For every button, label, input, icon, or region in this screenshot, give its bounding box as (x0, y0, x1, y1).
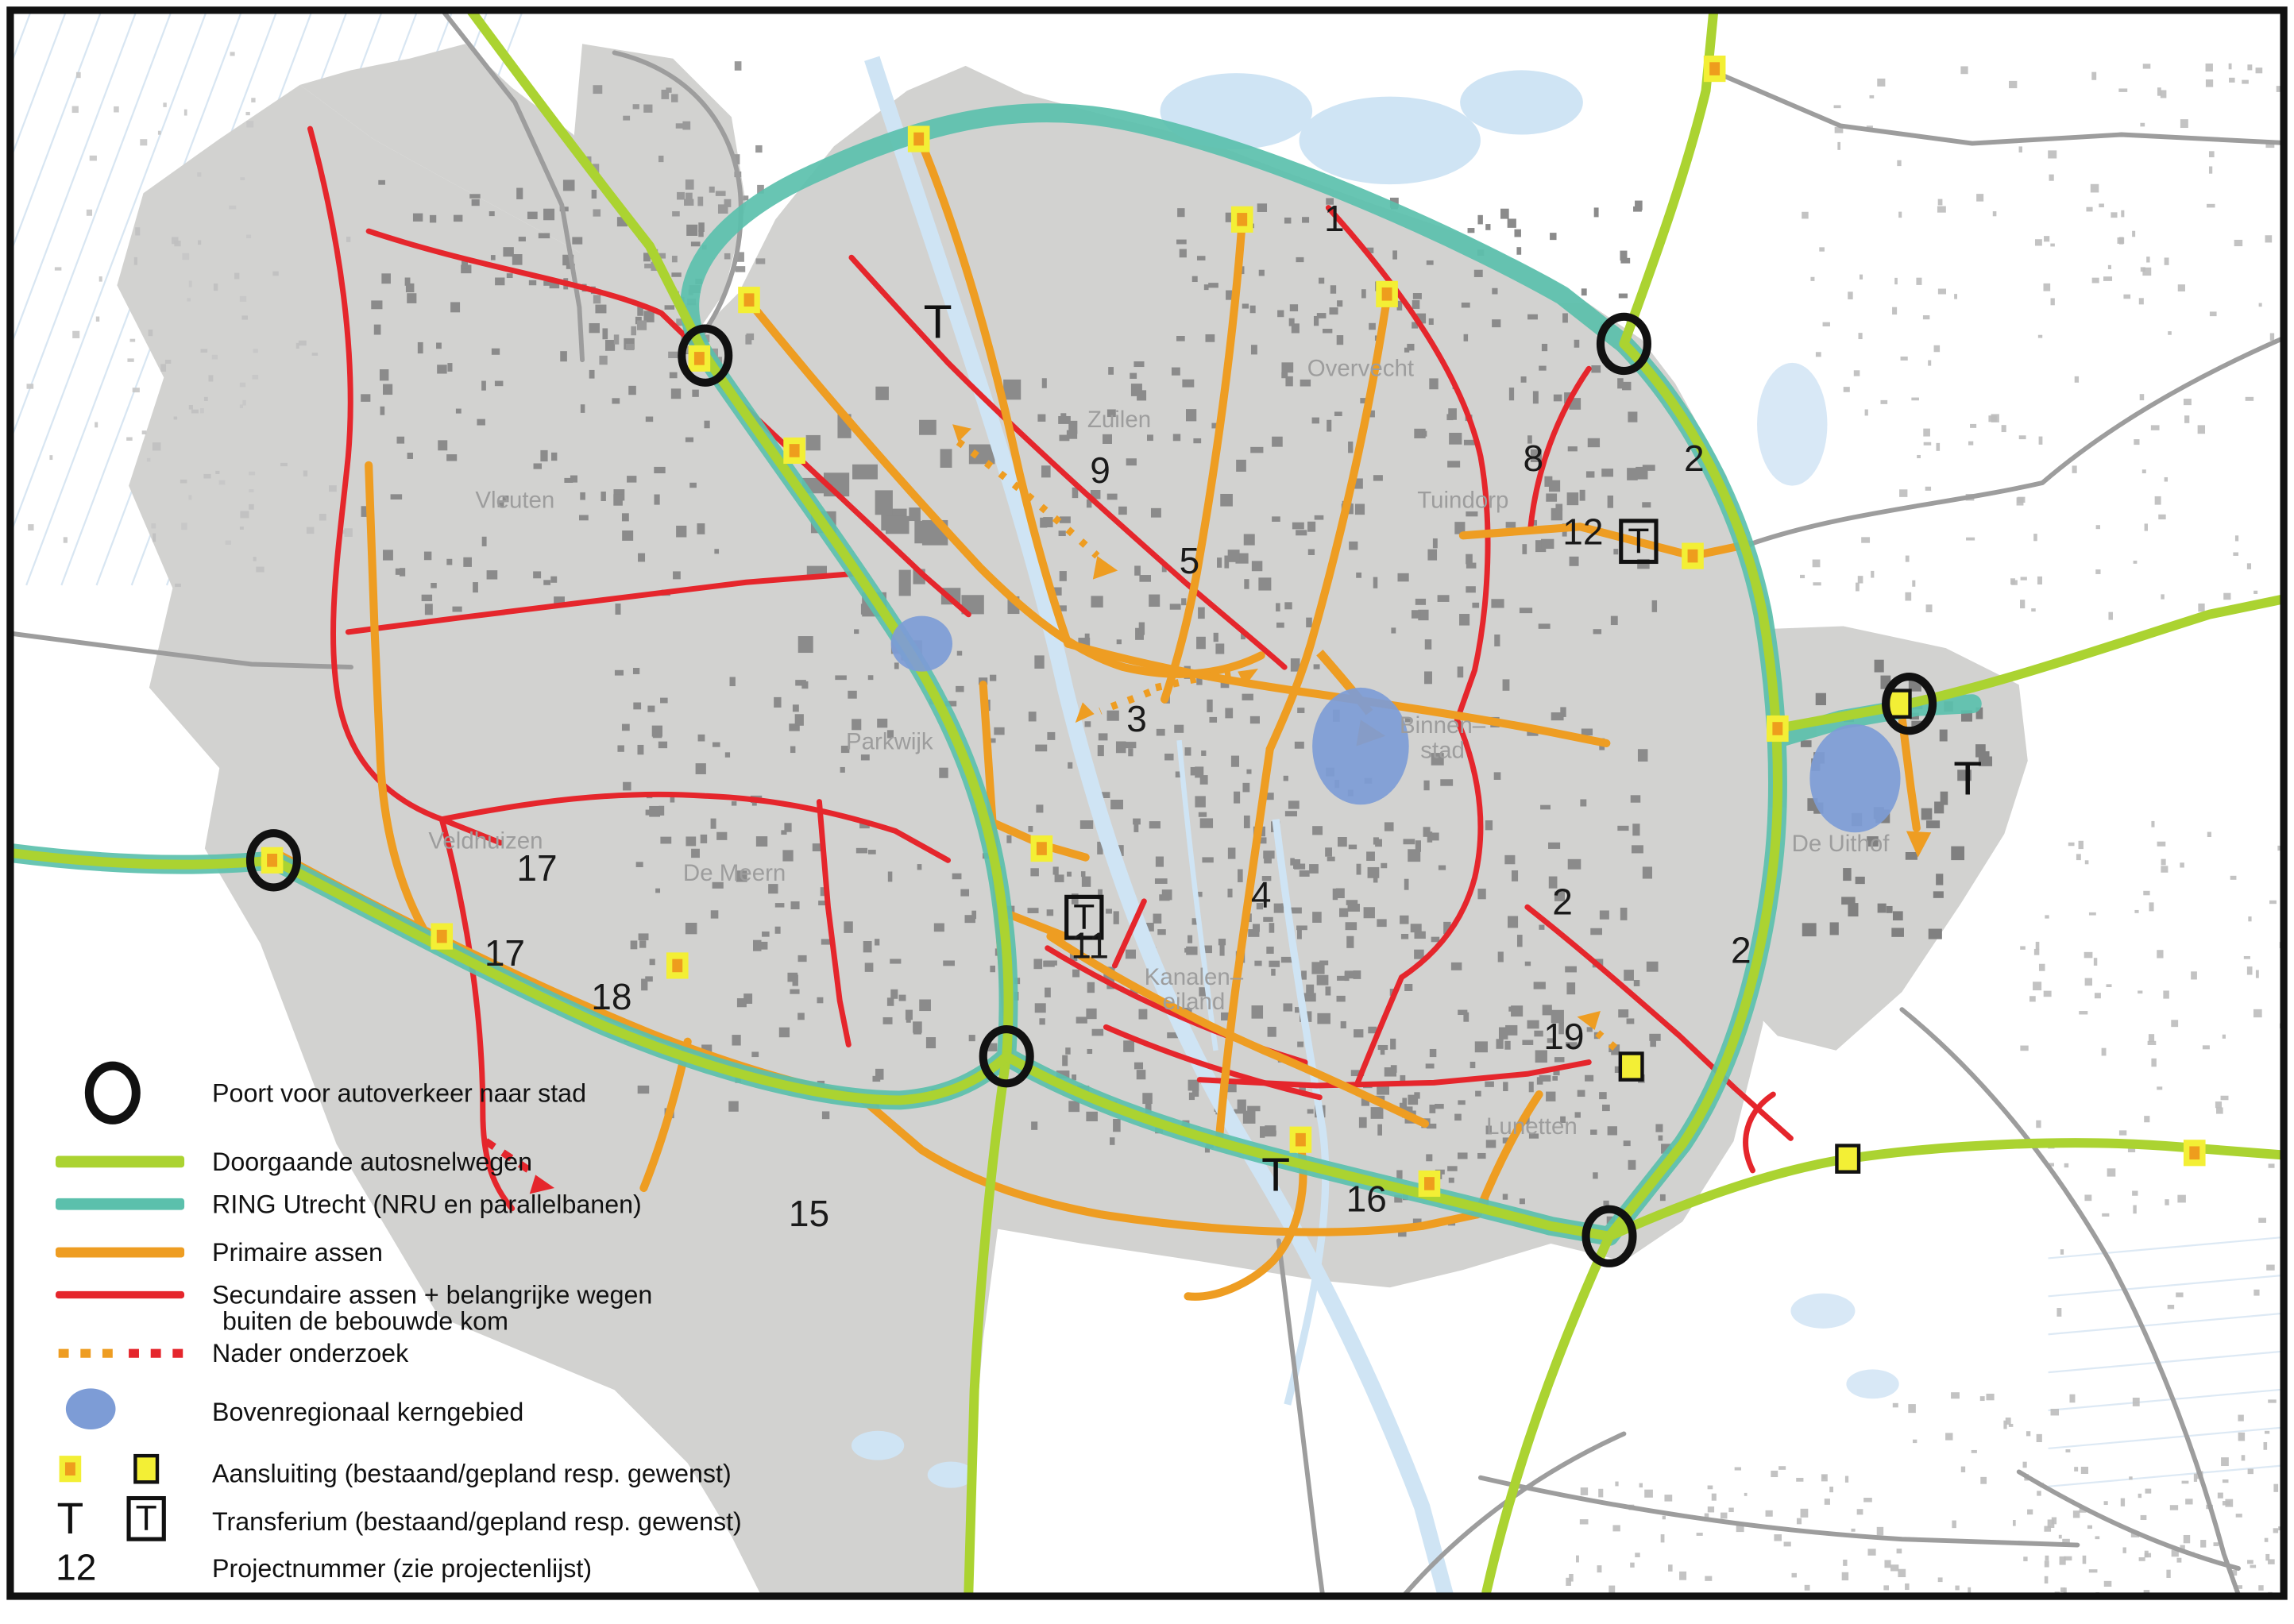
building-block (1504, 855, 1515, 864)
building-block (1435, 1104, 1444, 1109)
building-block (1231, 756, 1239, 767)
building-block (691, 241, 701, 246)
building-block (2060, 1249, 2064, 1255)
junction-inner (437, 930, 447, 943)
building-block (1628, 1160, 1636, 1170)
building-block (1568, 446, 1578, 451)
building-block (2214, 1542, 2219, 1546)
building-block (2107, 984, 2112, 987)
building-block (2184, 399, 2192, 405)
building-block (1296, 257, 1303, 262)
building-block (1600, 910, 1609, 919)
building-block (1312, 912, 1322, 923)
building-block (90, 156, 97, 161)
building-block (1157, 729, 1165, 736)
building-block (791, 901, 800, 909)
building-block (543, 580, 550, 584)
building-block (2184, 415, 2189, 423)
building-block (1720, 1513, 1727, 1519)
building-block (872, 1076, 880, 1082)
building-block (1006, 835, 1011, 843)
building-block (2176, 1558, 2181, 1563)
building-block (2161, 866, 2168, 872)
building-block (2209, 151, 2215, 157)
building-block (1359, 1117, 1367, 1128)
building-block (1951, 847, 1964, 861)
junction-existing-icon (1231, 206, 1253, 233)
building-block (2043, 284, 2050, 291)
building-block (969, 1035, 975, 1041)
building-block (2247, 1560, 2253, 1564)
building-block (2191, 1600, 2196, 1608)
building-block (1149, 821, 1161, 828)
building-block (1396, 1171, 1402, 1179)
building-block (844, 921, 852, 933)
building-block (909, 507, 921, 521)
building-block (714, 549, 719, 554)
building-block (1543, 1005, 1552, 1015)
building-block (716, 832, 727, 840)
building-block (1317, 313, 1327, 318)
building-block (899, 995, 906, 1001)
building-block (1412, 300, 1420, 309)
building-block (1509, 388, 1514, 400)
building-block (1327, 420, 1331, 432)
building-block (1041, 465, 1051, 477)
building-block (1877, 79, 1885, 87)
building-block (2029, 996, 2036, 1001)
building-block (1003, 380, 1021, 399)
building-block (1609, 1586, 1615, 1594)
building-block (452, 607, 462, 612)
building-block (636, 862, 643, 867)
building-block (1250, 716, 1260, 723)
building-block (639, 933, 649, 940)
building-block (1072, 970, 1079, 978)
building-block (1297, 1042, 1303, 1047)
building-block (919, 1000, 931, 1012)
building-block (1272, 516, 1280, 522)
building-block (2140, 394, 2145, 400)
building-block (1337, 996, 1346, 1002)
building-block (926, 1037, 936, 1048)
building-block (1268, 1027, 1276, 1037)
building-block (940, 449, 952, 468)
building-block (1062, 1055, 1068, 1067)
building-block (1492, 288, 1497, 295)
building-block (1928, 361, 1931, 366)
building-block (191, 410, 199, 414)
building-block (1243, 1111, 1256, 1124)
building-block (1423, 827, 1431, 837)
junction-existing-icon (1031, 835, 1053, 862)
building-block (672, 256, 678, 262)
building-block (2268, 1399, 2276, 1402)
building-block (2118, 237, 2125, 244)
building-block (658, 156, 663, 162)
building-block (676, 526, 686, 538)
building-block (153, 534, 156, 542)
building-block (1447, 1166, 1458, 1171)
building-block (200, 408, 204, 413)
building-block (2023, 1556, 2027, 1561)
building-block (249, 472, 255, 476)
building-block (682, 122, 690, 130)
building-block (1312, 826, 1323, 835)
building-block (2052, 1518, 2056, 1525)
building-block (1296, 925, 1307, 930)
building-block (861, 754, 870, 760)
building-block (1139, 575, 1151, 582)
building-block (2166, 1570, 2170, 1578)
building-block (1236, 460, 1246, 472)
building-block (1085, 721, 1091, 727)
building-block (793, 704, 799, 712)
building-block (589, 370, 595, 379)
building-block (890, 959, 901, 963)
building-block (1537, 1077, 1543, 1084)
building-block (2145, 523, 2148, 530)
building-block (943, 960, 955, 966)
building-block (1869, 95, 1874, 98)
building-block (856, 848, 867, 854)
building-block (1516, 247, 1521, 255)
building-block (2121, 210, 2124, 218)
building-block (407, 453, 413, 459)
transferium-existing-icon: T (1261, 1150, 1290, 1202)
building-block (519, 237, 526, 241)
building-block (147, 458, 150, 462)
building-block (2258, 1218, 2266, 1223)
building-block (1624, 970, 1634, 981)
building-block (1439, 866, 1446, 870)
building-block (2121, 1499, 2125, 1506)
building-block (581, 404, 585, 413)
building-block (668, 352, 678, 358)
building-block (1585, 1075, 1593, 1082)
building-block (1087, 982, 1095, 993)
building-block (1317, 975, 1329, 986)
building-block (1044, 960, 1057, 965)
building-block (1891, 928, 1904, 936)
building-block (1039, 1018, 1045, 1024)
building-block (875, 490, 893, 515)
building-block (1893, 911, 1903, 920)
building-block (1028, 908, 1039, 913)
building-block (1774, 1534, 1782, 1541)
building-block (1043, 517, 1052, 527)
building-block (230, 52, 235, 56)
building-block (2021, 577, 2027, 580)
building-block (251, 98, 255, 102)
building-block (627, 476, 636, 482)
building-block (1311, 962, 1324, 974)
building-block (430, 215, 436, 223)
lake-maarsseveen-2 (1300, 97, 1481, 185)
building-block (1431, 937, 1439, 943)
junction-inner (1424, 1177, 1435, 1190)
building-block (1118, 507, 1127, 515)
building-block (564, 478, 573, 483)
building-block (1735, 1468, 1741, 1471)
building-block (1284, 602, 1292, 609)
building-block (1542, 344, 1547, 351)
building-block (1177, 208, 1184, 217)
building-block (1655, 1124, 1663, 1132)
building-block (835, 675, 847, 680)
building-block (1185, 747, 1191, 756)
building-block (149, 330, 153, 336)
building-block (1813, 582, 1821, 585)
building-block (2157, 950, 2163, 958)
building-block (446, 454, 457, 461)
building-block (1422, 431, 1427, 437)
building-block (1841, 897, 1855, 905)
building-block (378, 180, 385, 185)
junction-inner (1709, 62, 1720, 75)
building-block (602, 328, 608, 339)
building-block (1917, 455, 1921, 458)
building-block (2134, 439, 2139, 445)
building-block (241, 315, 248, 319)
building-block (1464, 334, 1469, 341)
building-block (1276, 603, 1280, 611)
building-block (957, 651, 962, 656)
building-block (1952, 1521, 1956, 1529)
building-block (1134, 565, 1141, 575)
building-block (2019, 146, 2022, 152)
building-block (654, 467, 665, 473)
building-block (1035, 1003, 1046, 1013)
building-block (1581, 1487, 1588, 1495)
junction-existing-icon (908, 125, 930, 152)
building-block (863, 941, 872, 952)
building-block (2020, 600, 2025, 608)
building-block (1550, 233, 1556, 240)
building-block (1082, 877, 1091, 887)
building-block (743, 195, 748, 200)
building-block (1618, 1009, 1628, 1017)
building-block (2171, 1020, 2178, 1027)
building-block (1157, 929, 1165, 935)
building-block (1496, 1039, 1503, 1049)
building-block (1810, 277, 1814, 281)
building-block (87, 210, 92, 216)
building-block (1766, 1510, 1773, 1517)
building-block (1271, 969, 1276, 976)
building-block (201, 349, 208, 353)
building-block (1060, 516, 1071, 523)
building-block (1649, 1034, 1660, 1041)
building-block (174, 417, 177, 420)
building-block (1447, 461, 1460, 467)
building-block (2168, 331, 2172, 335)
building-block (1220, 494, 1233, 507)
building-block (685, 836, 696, 846)
building-block (1330, 285, 1336, 294)
building-block (658, 742, 667, 748)
building-block (1196, 637, 1206, 649)
building-block (1361, 289, 1366, 298)
building-block (1477, 1153, 1485, 1159)
building-block (1281, 372, 1288, 378)
building-block (1354, 1029, 1363, 1037)
building-block (72, 106, 79, 113)
building-block (1581, 288, 1587, 295)
building-block (753, 940, 761, 951)
building-block (1883, 1585, 1889, 1590)
building-block (1214, 633, 1218, 642)
building-block (1908, 1404, 1916, 1413)
building-block (1580, 1519, 1589, 1524)
building-block (153, 442, 160, 450)
building-block (1354, 970, 1361, 979)
pond-sw-1 (852, 1431, 904, 1460)
building-block (2206, 64, 2213, 71)
building-block (696, 763, 706, 774)
building-block (1284, 218, 1291, 224)
building-block (2200, 1540, 2206, 1548)
building-block (1068, 1101, 1079, 1112)
building-block (595, 305, 606, 314)
building-block (774, 697, 781, 708)
place-label: Parkwijk (846, 728, 933, 754)
building-block (135, 227, 140, 235)
building-block (1226, 291, 1232, 300)
building-block (671, 94, 678, 102)
building-block (436, 342, 442, 349)
building-block (189, 405, 193, 410)
building-block (1845, 1476, 1848, 1483)
building-block (533, 571, 541, 578)
building-block (188, 495, 191, 500)
building-block (1624, 1140, 1631, 1146)
junction-inner (65, 1462, 75, 1475)
building-block (2247, 966, 2253, 975)
building-block (1137, 1070, 1146, 1079)
building-block (2221, 1096, 2229, 1101)
building-block (1149, 595, 1160, 607)
building-block (601, 492, 605, 501)
place-label: Overvecht (1307, 355, 1414, 381)
building-block (1349, 845, 1357, 850)
building-block (1813, 560, 1821, 568)
building-block (1960, 66, 1968, 74)
building-block (1029, 712, 1037, 721)
junction-inner (1688, 550, 1698, 563)
building-block (1993, 211, 1997, 216)
building-block (551, 453, 557, 461)
building-block (1784, 1541, 1791, 1546)
building-block (1934, 345, 1941, 352)
building-block (1566, 982, 1575, 994)
building-block (2132, 231, 2135, 237)
building-block (1527, 314, 1538, 320)
building-block (1375, 839, 1382, 847)
building-block (685, 179, 694, 190)
pond-se-2 (1846, 1369, 1898, 1398)
building-block (631, 940, 638, 949)
building-block (1242, 303, 1249, 308)
project-number: 16 (1346, 1178, 1387, 1219)
building-block (736, 266, 746, 272)
building-block (240, 177, 245, 180)
building-block (491, 255, 496, 260)
building-block (1242, 783, 1249, 793)
building-block (2218, 1493, 2223, 1499)
building-block (2091, 184, 2099, 193)
project-number: 2 (1731, 929, 1751, 970)
building-block (2037, 1491, 2041, 1495)
building-block (647, 706, 655, 712)
building-block (1632, 845, 1643, 853)
building-block (1598, 1489, 1603, 1498)
building-block (2258, 1585, 2263, 1591)
building-block (1591, 365, 1601, 372)
building-block (952, 874, 962, 880)
building-block (1391, 627, 1396, 633)
building-block (1117, 639, 1122, 644)
building-block (96, 316, 99, 321)
building-block (1466, 554, 1473, 565)
building-block (756, 836, 767, 847)
building-block (643, 105, 652, 113)
building-block (1830, 922, 1839, 935)
building-block (1581, 728, 1593, 735)
building-block (1540, 805, 1551, 810)
building-block (1728, 1508, 1733, 1513)
building-block (1877, 1527, 1883, 1536)
building-block (660, 698, 668, 704)
building-block (1848, 291, 1852, 299)
building-block (1468, 228, 1475, 233)
building-block (1290, 304, 1298, 311)
building-block (685, 438, 693, 442)
building-block (2161, 594, 2164, 599)
building-block (2076, 854, 2081, 860)
junction-existing-icon (738, 287, 760, 313)
building-block (2140, 123, 2145, 127)
building-block (1923, 315, 1929, 319)
building-block (2230, 876, 2237, 880)
building-block (1875, 660, 1884, 673)
project-number: 15 (789, 1193, 829, 1234)
building-block (1485, 224, 1490, 230)
building-block (1668, 1564, 1673, 1572)
building-block (1334, 411, 1342, 416)
building-block (307, 527, 315, 534)
building-block (1181, 598, 1186, 605)
building-block (646, 810, 656, 816)
building-block (1842, 1572, 1848, 1580)
building-block (2026, 1431, 2030, 1436)
building-block (2103, 276, 2112, 281)
building-block (1861, 537, 1870, 542)
building-block (2104, 1581, 2112, 1587)
building-block (1190, 1084, 1197, 1091)
building-block (1173, 434, 1180, 441)
junction-existing-icon (2184, 1140, 2206, 1166)
project-number: 18 (591, 976, 631, 1017)
building-block (1458, 1152, 1468, 1159)
building-block (1218, 939, 1226, 945)
building-block (1199, 812, 1207, 817)
project-number: 11 (1071, 925, 1109, 966)
building-block (1898, 212, 1902, 218)
building-block (2133, 1398, 2140, 1406)
building-block (1091, 596, 1103, 608)
building-block (890, 989, 898, 999)
